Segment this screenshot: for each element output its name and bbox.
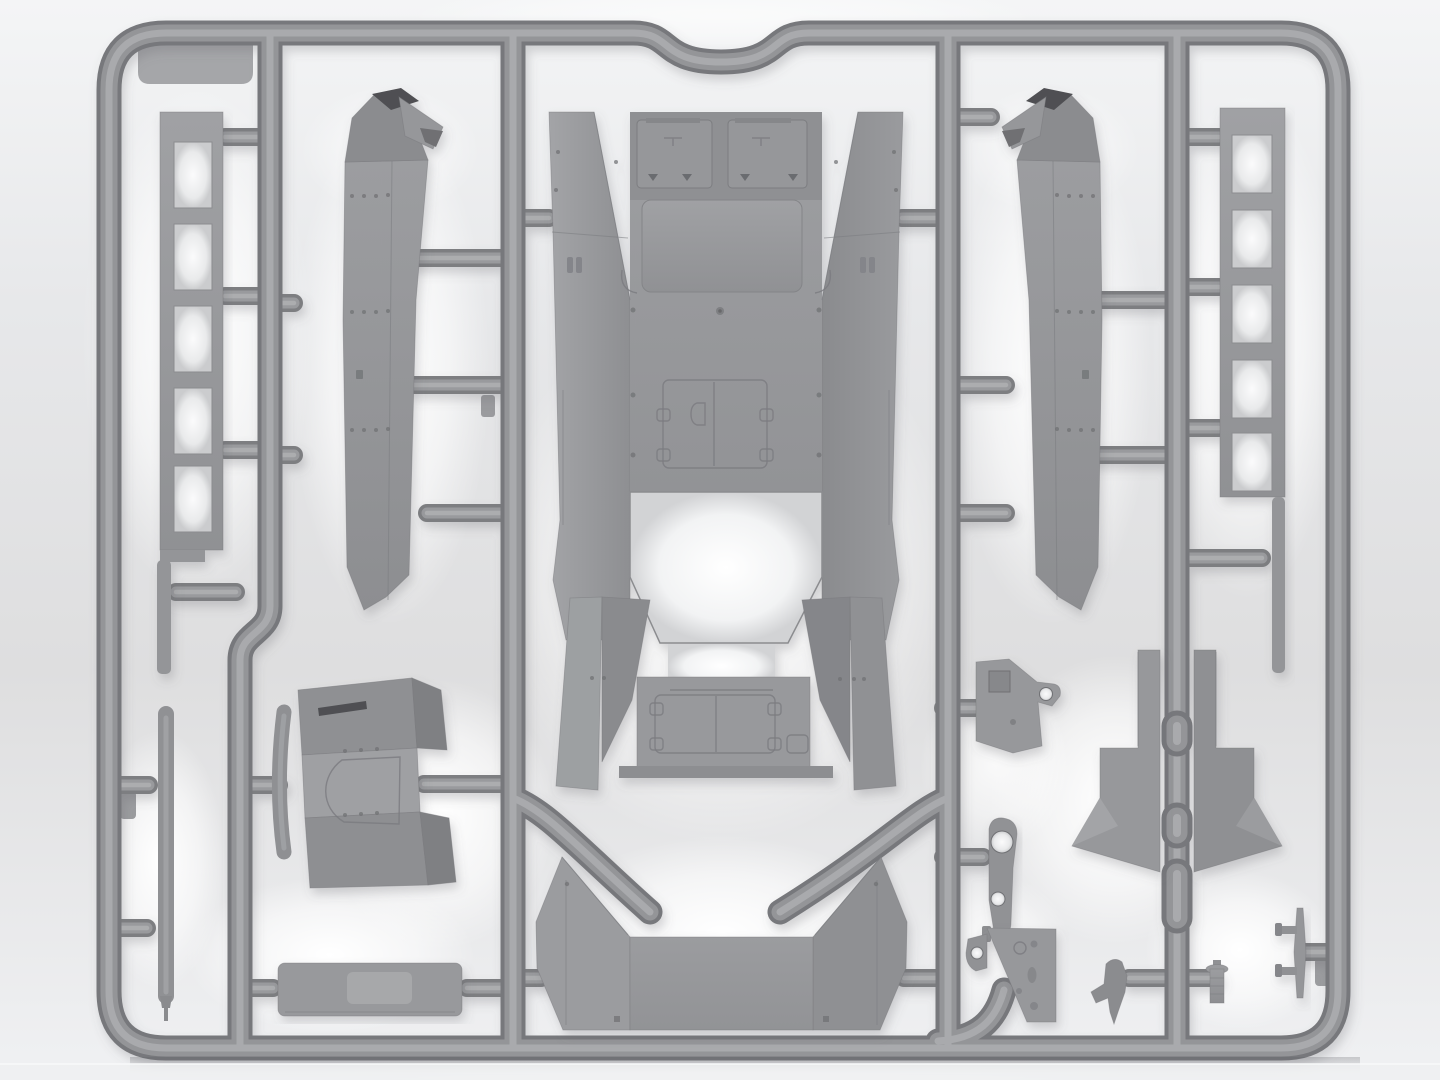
hull-open-bay [630, 492, 822, 643]
hull-lower-plate [637, 677, 810, 770]
label-tab [138, 45, 253, 84]
sprue-render [0, 0, 1440, 1080]
part-hull-center [549, 112, 903, 790]
part-box [278, 963, 462, 1016]
part-periscope [1091, 959, 1127, 1024]
part-rod-long [160, 714, 172, 1021]
sprue-photo [0, 0, 1440, 1080]
hull-right-wall [822, 112, 903, 640]
hull-left-wall [549, 112, 630, 640]
table-band [0, 1064, 1440, 1080]
part-rod-short [280, 712, 285, 852]
part-wing-pair-right [1194, 650, 1282, 872]
